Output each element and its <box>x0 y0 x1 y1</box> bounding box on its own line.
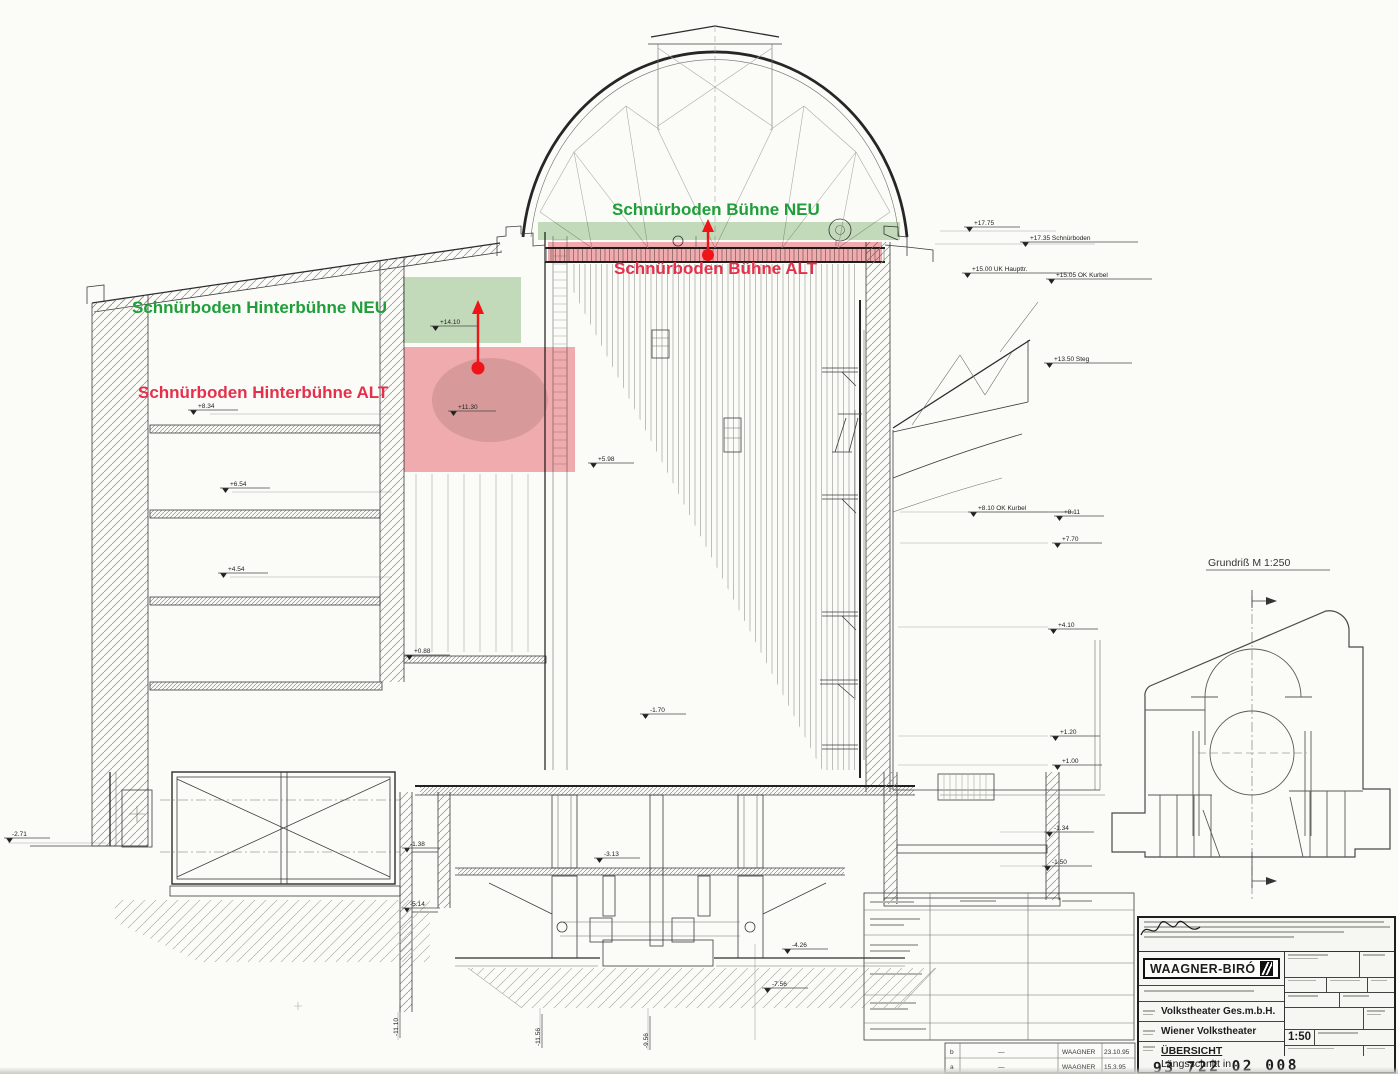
highlight-hinterbuehne-neu <box>403 277 521 343</box>
svg-text:+7.70: +7.70 <box>1062 536 1079 543</box>
svg-text:+5.98: +5.98 <box>598 456 615 463</box>
elevation-marker: +6.54 <box>220 481 270 493</box>
elevation-marker: +13.50 Steg <box>1044 356 1132 368</box>
svg-text:-4.26: -4.26 <box>792 942 807 949</box>
elevation-marker: +5.98 <box>588 456 634 468</box>
title-block: WAAGNER-BIRÓ Volkstheater Ges.m.b.H. Wie… <box>1137 916 1396 1074</box>
signature-cell <box>1285 1008 1364 1029</box>
svg-text:-1.50: -1.50 <box>1052 859 1067 866</box>
svg-text:+17.75: +17.75 <box>974 220 994 227</box>
elevation-marker: +15.05 OK Kurbel <box>1046 272 1152 284</box>
elevation-marker: -2.71 <box>4 831 50 843</box>
stage-left-stair-column <box>545 232 567 770</box>
svg-text:+8.10 OK Kurbel: +8.10 OK Kurbel <box>978 505 1027 512</box>
elevation-marker: -9.56 <box>643 1016 650 1050</box>
scanned-section-drawing: Schnürboden Bühne NEU Schnürboden Bühne … <box>0 0 1398 1074</box>
scale-value: 1:50 <box>1285 1030 1315 1044</box>
svg-text:+8.34: +8.34 <box>198 403 215 410</box>
elevation-marker: -1.70 <box>640 707 686 719</box>
label-hinterbuehne-neu: Schnürboden Hinterbühne NEU <box>132 298 387 317</box>
svg-text:+4.54: +4.54 <box>228 566 245 573</box>
company-logo-icon <box>1260 961 1273 976</box>
highlight-buehne-neu <box>538 222 900 240</box>
elevation-marker: +7.70 <box>1052 536 1102 548</box>
drawing-canvas: Schnürboden Bühne NEU Schnürboden Bühne … <box>0 0 1398 1074</box>
svg-text:-1.70: -1.70 <box>650 707 665 714</box>
fly-lines <box>570 264 855 770</box>
svg-text:+15.05 OK Kurbel: +15.05 OK Kurbel <box>1056 272 1108 279</box>
client-name: Volkstheater Ges.m.b.H. <box>1161 1006 1275 1017</box>
plan-caption: Grundriß M 1:250 <box>1208 557 1290 569</box>
elevation-marker: +1.20 <box>1050 729 1100 741</box>
drawing-title: ÜBERSICHT <box>1161 1045 1231 1058</box>
project-name: Wiener Volkstheater <box>1161 1026 1256 1037</box>
svg-text:+11.30: +11.30 <box>458 404 478 411</box>
svg-text:-11.56: -11.56 <box>535 1028 542 1046</box>
parapet-left <box>497 226 545 262</box>
revision-letter: b <box>950 1049 954 1056</box>
elevation-marker: +8.10 OK Kurbel <box>968 505 1074 517</box>
svg-text:+0.88: +0.88 <box>414 648 431 655</box>
revision-note: — <box>998 1049 1005 1056</box>
svg-text:-5.14: -5.14 <box>410 901 425 908</box>
svg-text:-3.13: -3.13 <box>604 851 619 858</box>
svg-text:-11.10: -11.10 <box>393 1018 400 1036</box>
svg-text:-1.34: -1.34 <box>1054 825 1069 832</box>
scan-edge-shadow <box>0 1067 1398 1074</box>
elevation-marker: +4.54 <box>218 566 268 578</box>
svg-text:-2.71: -2.71 <box>12 831 27 838</box>
svg-text:+4.10: +4.10 <box>1058 622 1075 629</box>
svg-text:+6.54: +6.54 <box>230 481 247 488</box>
svg-text:+8.11: +8.11 <box>1064 509 1080 516</box>
client-row: Volkstheater Ges.m.b.H. <box>1139 1002 1284 1022</box>
plan-section-cut-line <box>1198 590 1307 900</box>
label-hinterbuehne-alt: Schnürboden Hinterbühne ALT <box>138 383 389 402</box>
svg-text:+1.00: +1.00 <box>1062 758 1079 765</box>
revision-table <box>864 893 1134 1040</box>
project-row: Wiener Volkstheater <box>1139 1022 1284 1042</box>
understage-machinery <box>115 772 1105 1012</box>
label-buehne-neu: Schnürboden Bühne NEU <box>612 200 820 219</box>
elevation-marker: -11.10 <box>393 1004 400 1038</box>
svg-text:-1.38: -1.38 <box>410 841 425 848</box>
elevation-marker: +17.75 <box>964 220 1020 232</box>
arrow-dot <box>472 362 485 375</box>
title-block-grid: 1:50 <box>1285 952 1394 1056</box>
elevation-marker: -4.26 <box>782 942 828 954</box>
illegible-table-text <box>870 900 1092 1030</box>
svg-text:-9.56: -9.56 <box>643 1033 650 1048</box>
svg-text:+17.35 Schnürboden: +17.35 Schnürboden <box>1030 235 1091 242</box>
logo-subline <box>1139 990 1284 1002</box>
highlight-hinterbuehne-alt <box>404 347 575 472</box>
elevation-marker: +1.00 <box>1052 758 1102 770</box>
signature-scribble <box>1139 919 1203 939</box>
company-name: WAAGNER-BIRÓ <box>1150 962 1256 976</box>
svg-text:-7.56: -7.56 <box>772 981 787 988</box>
elevation-marker: +8.34 <box>188 403 238 415</box>
revision-date: 23.10.95 <box>1104 1049 1130 1056</box>
plan-outline <box>1112 611 1390 857</box>
elevation-marker: -11.56 <box>535 1014 542 1048</box>
elevation-marker: +17.35 Schnürboden <box>1020 235 1138 247</box>
elevation-marker: +4.10 <box>1048 622 1098 634</box>
revision-by: WAAGNER <box>1062 1049 1096 1056</box>
svg-text:+1.20: +1.20 <box>1060 729 1077 736</box>
auditorium-roof-truss <box>893 302 1100 790</box>
svg-text:+13.50 Steg: +13.50 Steg <box>1054 356 1090 363</box>
svg-text:+14.10: +14.10 <box>440 319 460 326</box>
label-buehne-alt: Schnürboden Bühne ALT <box>614 259 818 278</box>
svg-text:+15.00 UK Haupttr.: +15.00 UK Haupttr. <box>972 266 1028 273</box>
company-logo-row: WAAGNER-BIRÓ <box>1139 952 1284 986</box>
elevation-marker: +8.11 <box>1054 509 1104 521</box>
elevation-marker: -3.13 <box>594 851 640 863</box>
floor-plan: Grundriß M 1:250 <box>1112 557 1390 900</box>
